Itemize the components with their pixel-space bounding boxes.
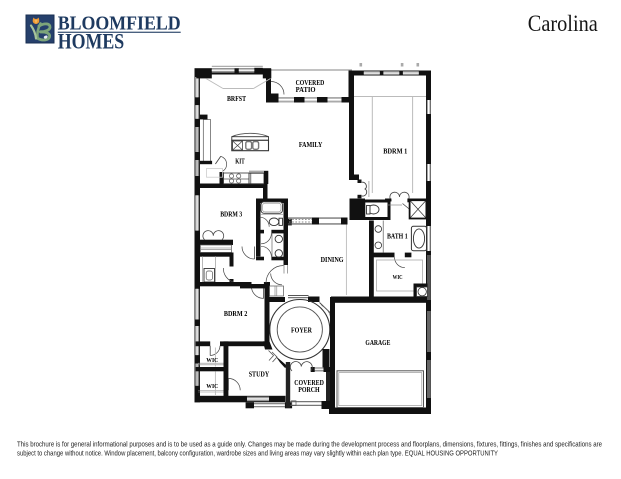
svg-text:HOMES: HOMES [58,29,125,54]
svg-text:DINING: DINING [321,256,344,264]
svg-text:BDRM 3: BDRM 3 [220,211,242,219]
svg-text:KIT: KIT [235,158,245,166]
svg-text:WIC: WIC [393,274,403,281]
svg-text:BDRM 2: BDRM 2 [224,310,248,318]
svg-text:GARAGE: GARAGE [365,339,390,347]
svg-text:FAMILY: FAMILY [299,141,322,149]
svg-text:WIC: WIC [206,357,218,364]
svg-text:This brochure is for general i: This brochure is for general information… [17,441,602,448]
svg-text:PATIO: PATIO [296,86,317,94]
svg-text:BATH 1: BATH 1 [387,233,408,241]
svg-text:BRFST: BRFST [227,95,246,103]
svg-text:BDRM 1: BDRM 1 [383,147,407,155]
svg-text:STUDY: STUDY [249,370,270,378]
svg-text:subject to change without noti: subject to change without notice. Window… [17,450,498,457]
svg-text:Carolina: Carolina [528,11,598,36]
svg-text:WIC: WIC [206,383,218,390]
svg-text:FOYER: FOYER [291,327,313,335]
svg-text:PORCH: PORCH [298,386,320,394]
